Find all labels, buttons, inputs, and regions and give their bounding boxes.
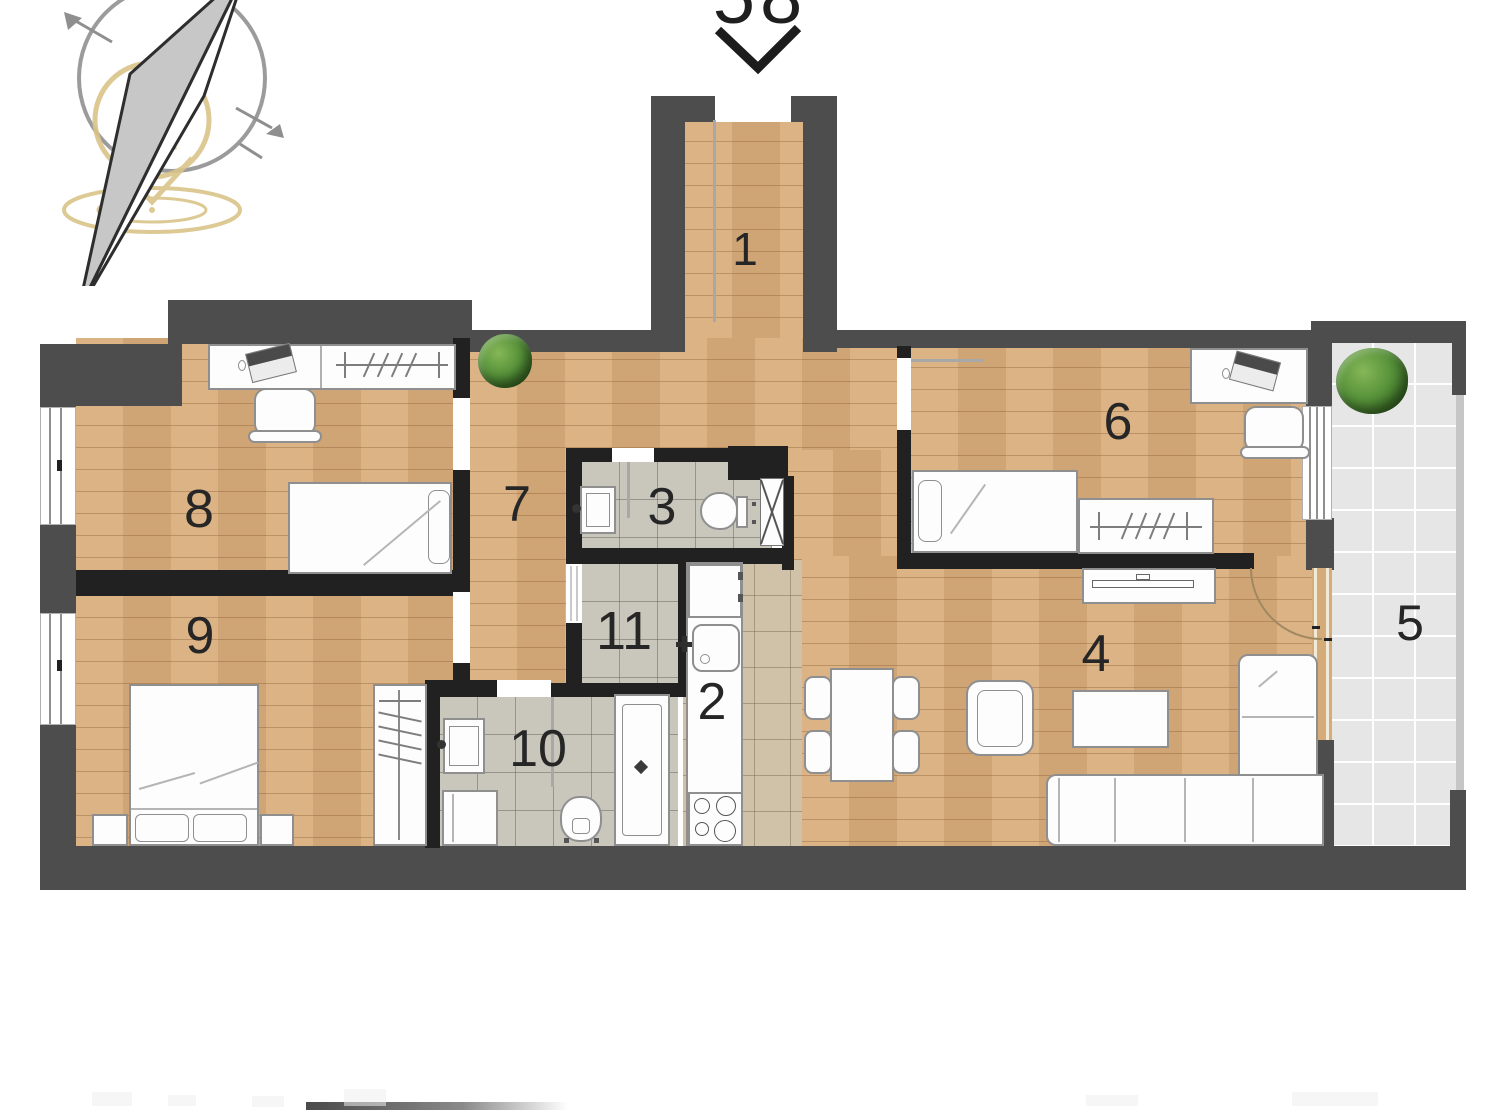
wall-segment	[425, 680, 440, 848]
office-chair-back	[1240, 446, 1310, 459]
room-label-7: 7	[503, 475, 531, 533]
door-handle	[1324, 638, 1332, 641]
kitchen-sink	[692, 624, 740, 672]
window-handle	[57, 460, 62, 471]
wardrobe-rail	[398, 690, 400, 840]
wall-segment	[654, 448, 730, 462]
door-opening	[897, 358, 911, 430]
toilet-dot	[594, 838, 599, 843]
dining-chair	[892, 676, 920, 720]
scale-bar-smudge	[252, 1096, 284, 1107]
door-frame-line	[1326, 568, 1329, 740]
door-leaf	[911, 359, 983, 362]
sofa-cushion-line	[1242, 716, 1314, 718]
wall-segment	[566, 448, 612, 462]
faucet-icon	[437, 740, 446, 749]
door-opening	[453, 398, 470, 470]
wardrobe-rail	[336, 364, 448, 366]
room-label-5: 5	[1396, 594, 1424, 652]
fridge-handle	[738, 572, 743, 580]
washbasin-inner	[449, 726, 479, 766]
room-label-1: 1	[732, 222, 758, 276]
armchair-seat	[977, 690, 1023, 747]
room-label-10: 10	[509, 719, 567, 779]
potted-plant	[478, 334, 532, 388]
sofa-cushion-line	[1114, 778, 1116, 842]
desk-divider	[320, 346, 322, 388]
wall-segment	[1311, 321, 1466, 343]
room-label-11: 11	[596, 600, 652, 662]
pillow	[193, 814, 247, 842]
hallway-floor-right	[786, 450, 897, 567]
potted-plant	[1336, 348, 1408, 414]
room-label-4: 4	[1082, 624, 1111, 684]
door-opening	[453, 592, 470, 663]
door-opening	[497, 680, 551, 697]
faucet-icon	[572, 504, 581, 513]
scale-bar-smudge	[1292, 1092, 1378, 1106]
fridge	[688, 564, 742, 618]
door-frame-line	[570, 566, 572, 621]
wall-segment	[897, 553, 1254, 569]
room-label-8: 8	[184, 478, 214, 540]
burner	[695, 822, 709, 836]
wardrobe-rail-tick	[1098, 512, 1100, 540]
window-frame-line	[1316, 407, 1318, 519]
pillow	[135, 814, 189, 842]
room-label-9: 9	[186, 606, 215, 666]
door-opening	[715, 96, 791, 122]
wall-segment	[40, 846, 1466, 890]
entrance-chevron-icon	[712, 24, 804, 76]
door-leaf	[627, 462, 630, 518]
tv-base	[1136, 574, 1150, 580]
wall-segment	[566, 623, 582, 685]
wardrobe-rail-tick	[379, 700, 421, 702]
wall-segment	[1306, 518, 1334, 570]
faucet-icon	[682, 636, 687, 652]
balcony-floor	[1332, 343, 1456, 848]
toilet	[700, 492, 738, 530]
wall-segment	[803, 96, 837, 352]
fridge-handle	[738, 594, 743, 602]
toilet-dot	[752, 502, 756, 506]
sofa-armrest-line	[1058, 778, 1060, 842]
wall-segment	[40, 725, 76, 848]
sofa-chaise	[1238, 654, 1318, 776]
wall-segment	[791, 96, 837, 122]
wardrobe-rail-tick	[1186, 512, 1188, 540]
dining-chair	[804, 730, 832, 774]
wardrobe	[373, 684, 427, 846]
door-frame-line	[576, 566, 578, 621]
wall-segment	[425, 680, 497, 697]
toilet-inner	[572, 818, 590, 834]
washing-machine	[442, 790, 498, 846]
scale-bar-smudge	[168, 1095, 196, 1106]
compass-logo-watermark	[12, 0, 332, 286]
coffee-table	[1072, 690, 1169, 748]
dining-chair	[804, 676, 832, 720]
room-label-2: 2	[698, 672, 727, 732]
sofa-cushion-line	[1252, 778, 1254, 842]
door-opening	[566, 564, 582, 623]
pillow	[918, 480, 942, 542]
door-opening	[612, 448, 654, 462]
burner	[694, 798, 710, 814]
wall-segment	[1450, 790, 1466, 848]
wall-segment	[168, 300, 472, 344]
tv-icon	[1092, 580, 1194, 588]
window-handle	[57, 660, 62, 671]
bed-foot-line	[131, 808, 257, 810]
room-label-3: 3	[648, 477, 677, 537]
scale-bar-smudge	[92, 1092, 132, 1106]
washing-machine-line	[452, 794, 454, 842]
mouse-icon	[238, 360, 246, 371]
wall-segment	[897, 430, 911, 555]
window-frame-line	[49, 408, 51, 524]
floor-plan-canvas: 58	[0, 0, 1500, 1110]
wall-segment	[40, 525, 76, 613]
wall-segment	[453, 470, 470, 592]
scale-bar-smudge	[344, 1089, 386, 1106]
office-chair-back	[248, 430, 322, 443]
window-frame-line	[1309, 407, 1311, 519]
wall-segment	[1452, 321, 1466, 395]
hallway-floor-upper	[470, 338, 897, 456]
burner	[716, 796, 736, 816]
room-label-6: 6	[1104, 392, 1133, 452]
door-leaf	[713, 120, 716, 322]
window-frame-line	[1323, 407, 1325, 519]
burner	[714, 820, 736, 842]
wardrobe-rail-tick	[344, 352, 346, 378]
dining-chair	[892, 730, 920, 774]
wall-segment	[897, 346, 911, 358]
sofa-cushion-line	[1184, 778, 1186, 842]
toilet-dot	[752, 520, 756, 524]
wardrobe-rail-tick	[438, 352, 440, 378]
wall-segment	[1306, 343, 1332, 408]
wall-segment	[651, 96, 715, 122]
washbasin-inner	[586, 493, 610, 527]
scale-bar-smudge	[1086, 1095, 1138, 1106]
wall-segment	[651, 96, 685, 352]
wall-segment	[728, 446, 788, 480]
toilet-tank	[736, 496, 748, 528]
nightstand	[260, 814, 294, 846]
office-chair	[254, 388, 316, 436]
window-frame-line	[49, 614, 51, 724]
nightstand	[92, 814, 128, 846]
wall-segment	[40, 344, 76, 407]
toilet-dot	[564, 838, 569, 843]
sink-drain	[700, 654, 710, 664]
dining-table	[830, 668, 894, 782]
mouse-icon	[1222, 368, 1230, 379]
balcony-railing	[1456, 343, 1464, 843]
